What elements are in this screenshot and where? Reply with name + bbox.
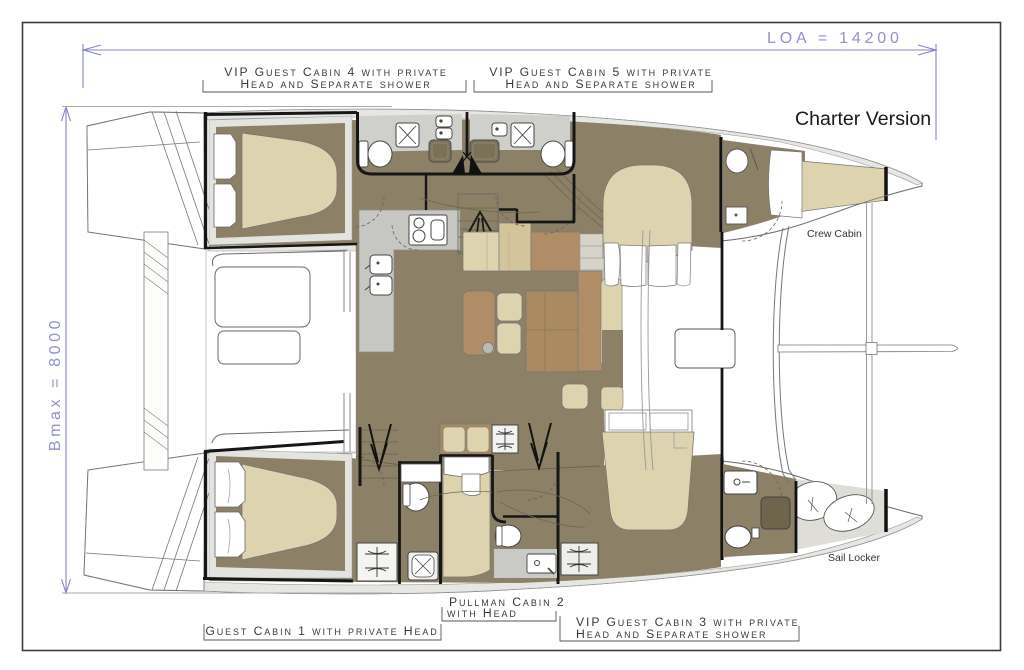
svg-text:Head and Separate shower: Head and Separate shower (576, 627, 767, 641)
svg-text:Crew Cabin: Crew Cabin (807, 228, 862, 240)
svg-text:Head and Separate shower: Head and Separate shower (505, 77, 696, 91)
svg-text:Guest Cabin 1 with private Hea: Guest Cabin 1 with private Head (205, 624, 438, 638)
svg-text:Bmax = 8000: Bmax = 8000 (47, 317, 64, 451)
svg-text:Head and Separate shower: Head and Separate shower (240, 77, 431, 91)
svg-text:with Head: with Head (447, 606, 518, 620)
svg-text:Charter Version: Charter Version (795, 108, 931, 130)
svg-text:Sail Locker: Sail Locker (828, 552, 880, 564)
svg-text:LOA = 14200: LOA = 14200 (767, 30, 903, 47)
